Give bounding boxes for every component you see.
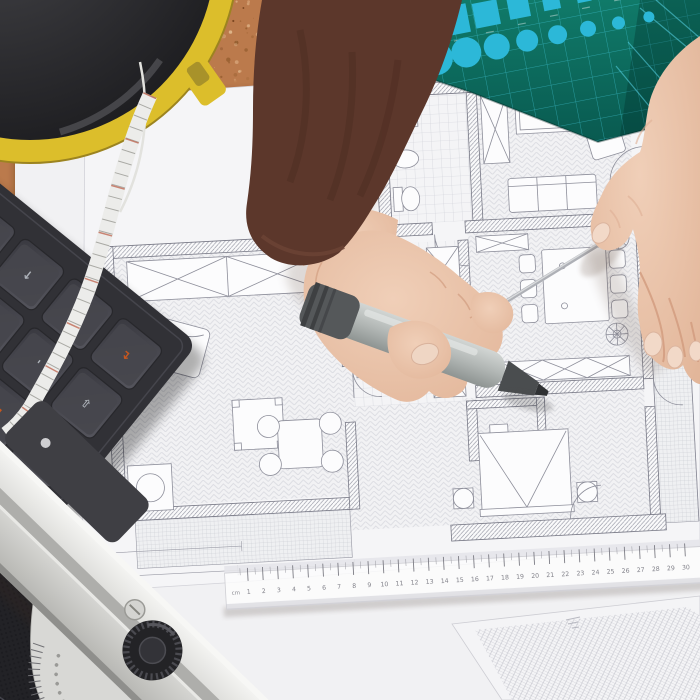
ruler-unit-label: cm (232, 590, 241, 596)
ruler-number: 26 (622, 568, 630, 575)
ruler-number: 9 (367, 582, 371, 589)
ruler-number: 27 (637, 567, 645, 574)
ruler-number: 18 (501, 574, 509, 581)
ruler-number: 28 (652, 566, 660, 573)
ruler-number: 6 (322, 584, 326, 591)
mat-square (472, 0, 501, 29)
ruler-number: 14 (441, 578, 449, 585)
ruler-number: 30 (682, 564, 690, 571)
ruler-number: 8 (352, 583, 356, 590)
ruler-number: 5 (307, 585, 311, 592)
workspace-photo: ↴→↓←.,M⇧';LKJH↵][POIU⌫=-0987F9F8F7F6F5F4… (0, 0, 700, 700)
ruler-number: 1 (247, 589, 251, 596)
ruler-number: 19 (516, 573, 524, 580)
ruler-number: 20 (531, 573, 539, 580)
ruler-number: 13 (426, 578, 434, 585)
ruler-number: 3 (277, 587, 281, 594)
ruler-number: 2 (262, 588, 266, 595)
ruler-number: 12 (410, 579, 418, 586)
ruler-number: 29 (667, 565, 675, 572)
ruler-number: 23 (576, 570, 584, 577)
ruler-number: 16 (471, 576, 479, 583)
ruler-number: 11 (395, 580, 403, 587)
ruler-number: 10 (380, 581, 388, 588)
ruler-number: 21 (546, 572, 554, 579)
ruler-number: 17 (486, 575, 494, 582)
ruler-number: 22 (561, 571, 569, 578)
ruler-number: 15 (456, 577, 464, 584)
ruler-number: 4 (292, 586, 296, 593)
ruler-number: 25 (606, 568, 614, 575)
ruler-number: 7 (337, 584, 341, 591)
ruler-number: 24 (591, 569, 599, 576)
